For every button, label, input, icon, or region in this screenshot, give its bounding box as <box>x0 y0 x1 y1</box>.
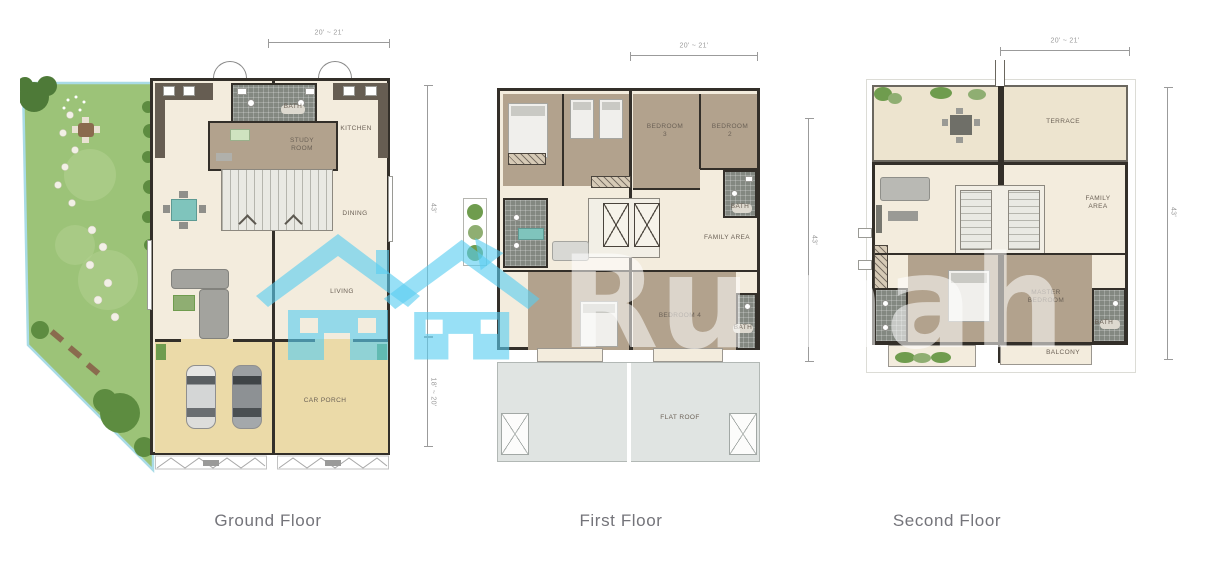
sofa <box>199 289 229 339</box>
dimension-line <box>630 55 758 56</box>
roof-opening <box>501 413 529 455</box>
room-label-bath: BATH <box>284 103 302 111</box>
first-floor-plan: BEDROOM 3 BEDROOM 2 BATH FAMILY AREA <box>497 88 760 350</box>
bed <box>599 99 623 139</box>
wall <box>699 94 701 169</box>
dimension-line <box>427 85 428 337</box>
balcony <box>888 345 976 367</box>
wardrobe <box>591 176 631 188</box>
bed <box>570 99 594 139</box>
bathroom <box>736 293 757 350</box>
wall <box>633 188 700 190</box>
dimension-label: 20' ~ 21' <box>680 43 709 50</box>
room-label-master-bedroom: MASTER BEDROOM <box>1024 289 1068 305</box>
chair <box>163 205 170 213</box>
room-label-study-room: STUDY ROOM <box>285 137 319 153</box>
floor-plans-canvas: BATH STUDY ROOM KITCHEN DINING LIVING <box>0 0 1206 582</box>
sofa <box>552 241 589 261</box>
window <box>388 176 393 242</box>
car <box>186 365 216 429</box>
stair-flight <box>960 190 992 250</box>
driveway-gate <box>155 455 267 471</box>
wall <box>562 94 564 186</box>
flat-roof <box>497 362 760 462</box>
first-floor-title: First Floor <box>579 511 662 531</box>
sink <box>163 86 175 96</box>
wall <box>155 339 181 342</box>
room-label-bath: BATH <box>1095 319 1113 327</box>
dimension-label: 43' <box>1170 207 1177 217</box>
bed <box>580 301 618 347</box>
balcony-ledge <box>653 348 723 362</box>
table <box>888 211 918 221</box>
sofa <box>880 177 930 201</box>
wall <box>353 339 388 342</box>
kitchen-counter <box>155 100 165 158</box>
dimension-line <box>427 337 428 447</box>
coffee-table <box>173 295 195 311</box>
bathroom <box>231 83 317 125</box>
bathroom <box>874 288 908 343</box>
bathroom <box>1092 288 1126 343</box>
wall <box>275 339 315 342</box>
kitchen-counter <box>378 100 388 158</box>
planter-box <box>156 344 166 360</box>
room-label-living: LIVING <box>330 288 354 296</box>
terrace-plants <box>968 89 986 100</box>
window <box>147 240 152 310</box>
chair <box>956 137 963 143</box>
room-label-family-area: FAMILY AREA <box>697 234 757 242</box>
room-label-flat-roof: FLAT ROOF <box>660 414 699 422</box>
sink <box>343 86 355 96</box>
sofa <box>171 269 229 289</box>
stair-void <box>634 203 660 247</box>
entrance-door-arc <box>318 61 352 78</box>
terrace-plants <box>888 93 902 104</box>
kitchen-counter <box>333 83 388 100</box>
room-label-bath-lower: BATH <box>734 324 752 332</box>
room-label-bedroom4: BEDROOM 4 <box>658 312 702 320</box>
planter-box <box>377 344 387 360</box>
room-label-bedroom3: BEDROOM 3 <box>645 123 685 139</box>
window-ledge <box>858 228 872 238</box>
chair <box>179 222 188 229</box>
ground-floor-title: Ground Floor <box>214 511 321 531</box>
stair-void <box>603 203 629 247</box>
room-label-family-area: FAMILY AREA <box>1083 195 1113 211</box>
window-ledge <box>858 260 872 270</box>
chair <box>942 119 948 126</box>
bed <box>508 103 548 158</box>
dimension-line <box>268 42 390 43</box>
dimension-label: 20' ~ 21' <box>315 30 344 37</box>
dimension-label: 20' ~ 21' <box>1051 38 1080 45</box>
room-label-kitchen: KITCHEN <box>340 125 371 133</box>
stair-flight <box>1008 190 1040 250</box>
terrace-plants <box>930 87 952 99</box>
chair <box>974 119 980 126</box>
room-label-balcony: BALCONY <box>1046 349 1080 357</box>
entrance-door-arc <box>213 61 247 78</box>
balcony-ledge <box>537 348 603 362</box>
stove <box>365 86 377 96</box>
chair <box>179 191 188 198</box>
wall <box>233 339 273 342</box>
dimension-label: 43' <box>811 235 818 245</box>
stairs <box>221 169 333 231</box>
dimension-label: 18' ~ 20' <box>430 378 437 407</box>
dimension-line <box>1000 50 1130 51</box>
room-label-bath-upper: BATH <box>731 203 749 211</box>
bed <box>948 270 990 322</box>
dining-table <box>171 199 197 221</box>
room-label-bedroom2: BEDROOM 2 <box>710 123 750 139</box>
wardrobe <box>508 153 546 165</box>
ground-floor-plan: BATH STUDY ROOM KITCHEN DINING LIVING <box>150 78 390 455</box>
second-floor-title: Second Floor <box>893 511 1001 531</box>
tv-console <box>876 205 882 233</box>
driveway-gate <box>277 455 389 471</box>
bench <box>518 228 544 240</box>
second-floor-plan: TERRACE FAMILY AREA MASTER BEDROOM <box>872 85 1128 370</box>
dimension-line <box>1167 87 1168 360</box>
stove <box>183 86 195 96</box>
terrace-table <box>950 115 972 135</box>
chair <box>199 205 206 213</box>
room-label-car-porch: CAR PORCH <box>304 397 347 405</box>
planter-box <box>463 198 487 266</box>
chair <box>956 108 963 114</box>
wall-stub <box>995 60 1005 86</box>
room-label-dining: DINING <box>342 210 367 218</box>
bedroom3-floor <box>633 94 700 189</box>
roof-opening <box>729 413 757 455</box>
garden <box>20 75 165 475</box>
room-label-terrace: TERRACE <box>1046 118 1080 126</box>
car <box>232 365 262 429</box>
dimension-line <box>808 118 809 362</box>
dimension-label: 43' <box>430 203 437 213</box>
